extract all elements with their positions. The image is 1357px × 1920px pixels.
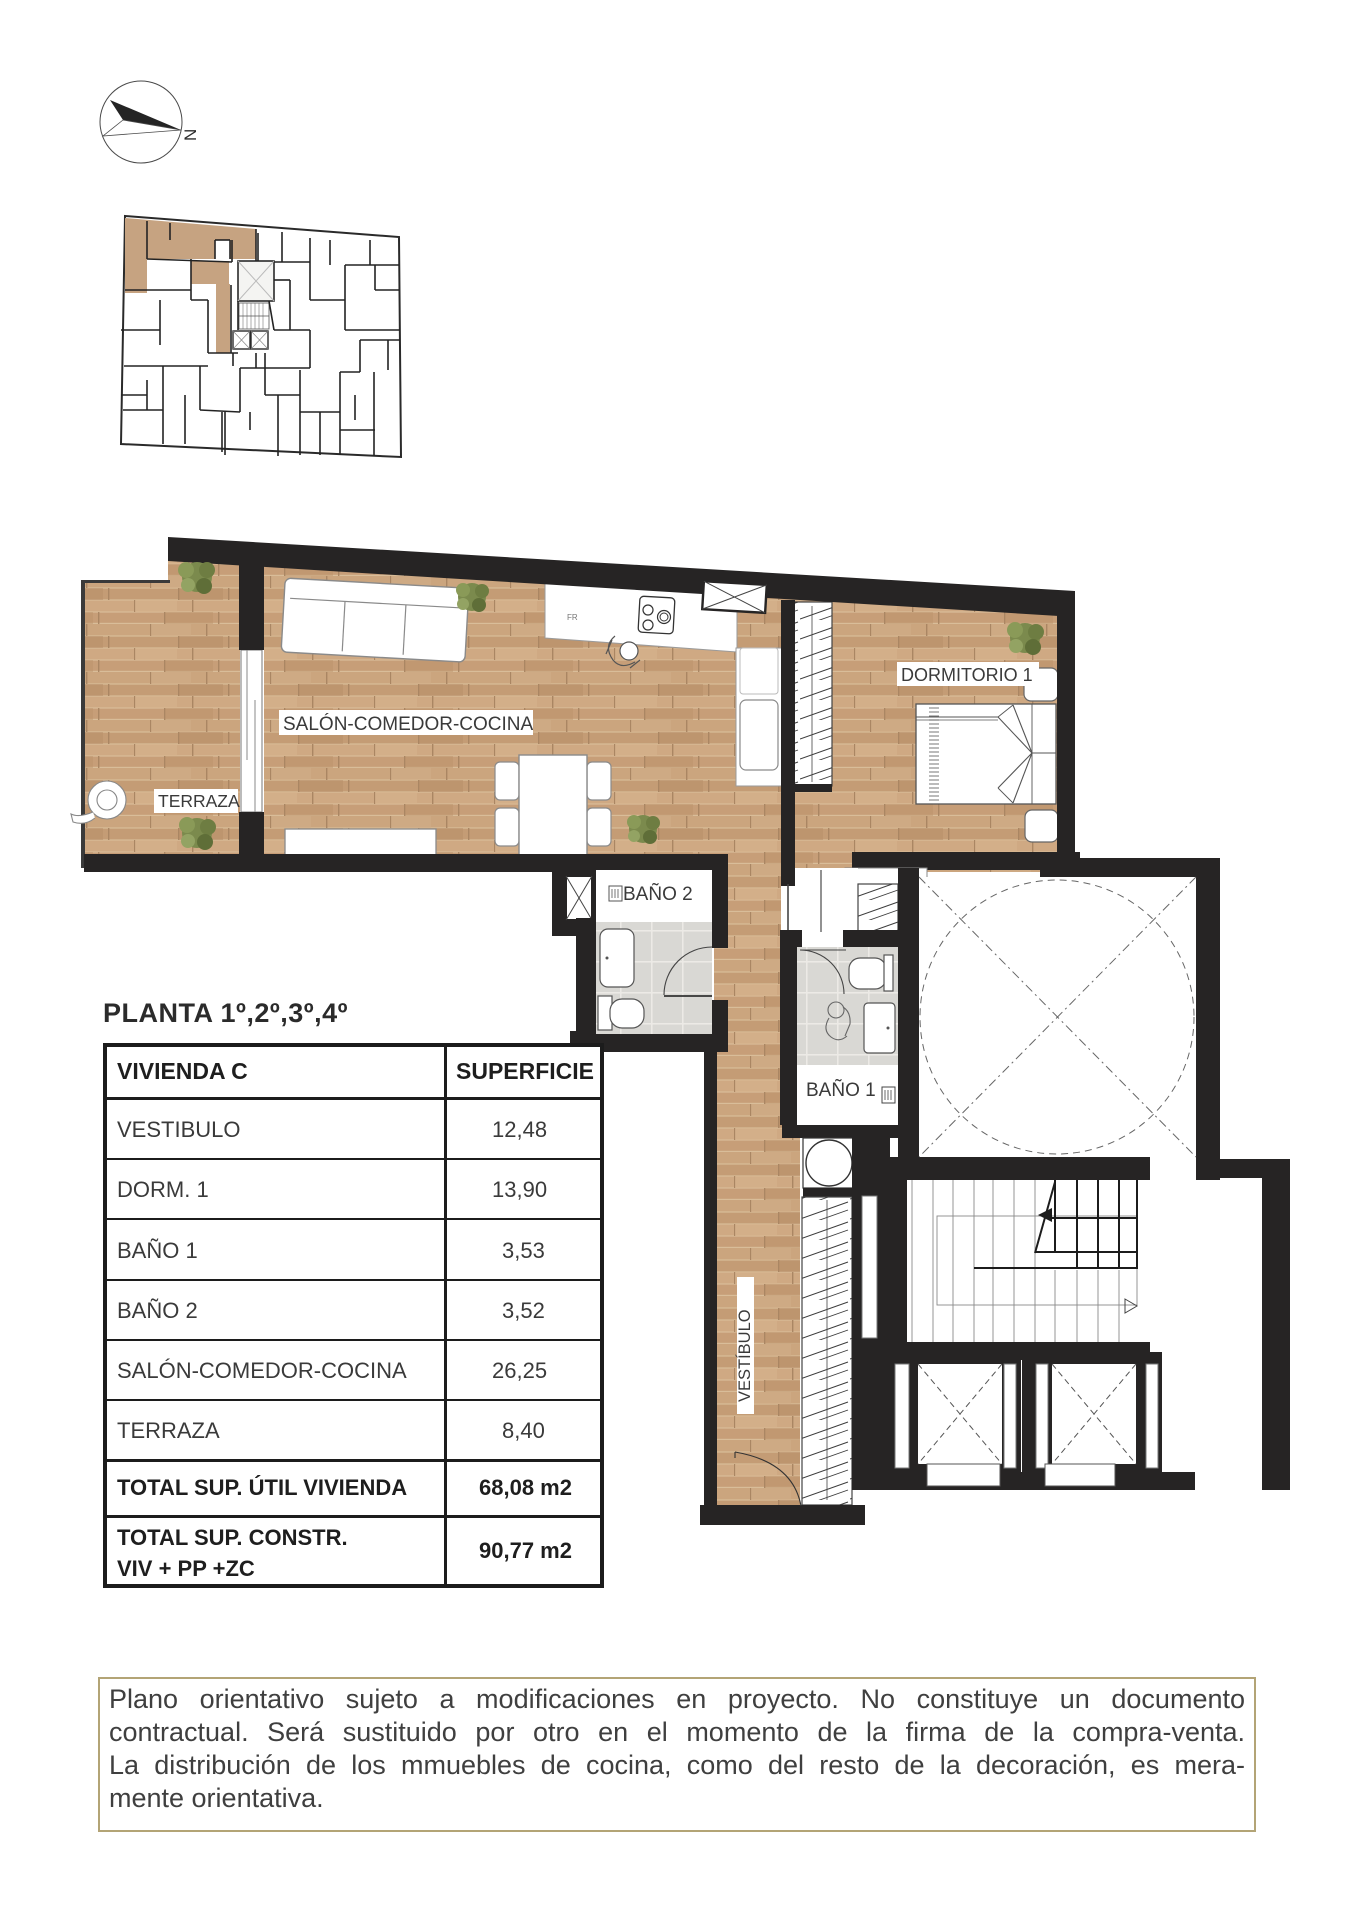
svg-text:BAÑO 1: BAÑO 1 bbox=[806, 1079, 876, 1101]
svg-text:DORMITORIO 1: DORMITORIO 1 bbox=[901, 665, 1033, 685]
svg-text:TERRAZA: TERRAZA bbox=[158, 791, 240, 811]
svg-text:VESTÍBULO: VESTÍBULO bbox=[735, 1309, 754, 1402]
svg-text:N: N bbox=[181, 129, 200, 141]
svg-text:FR: FR bbox=[567, 613, 578, 622]
svg-text:BAÑO 2: BAÑO 2 bbox=[623, 883, 693, 905]
svg-text:SALÓN-COMEDOR-COCINA: SALÓN-COMEDOR-COCINA bbox=[283, 713, 534, 735]
